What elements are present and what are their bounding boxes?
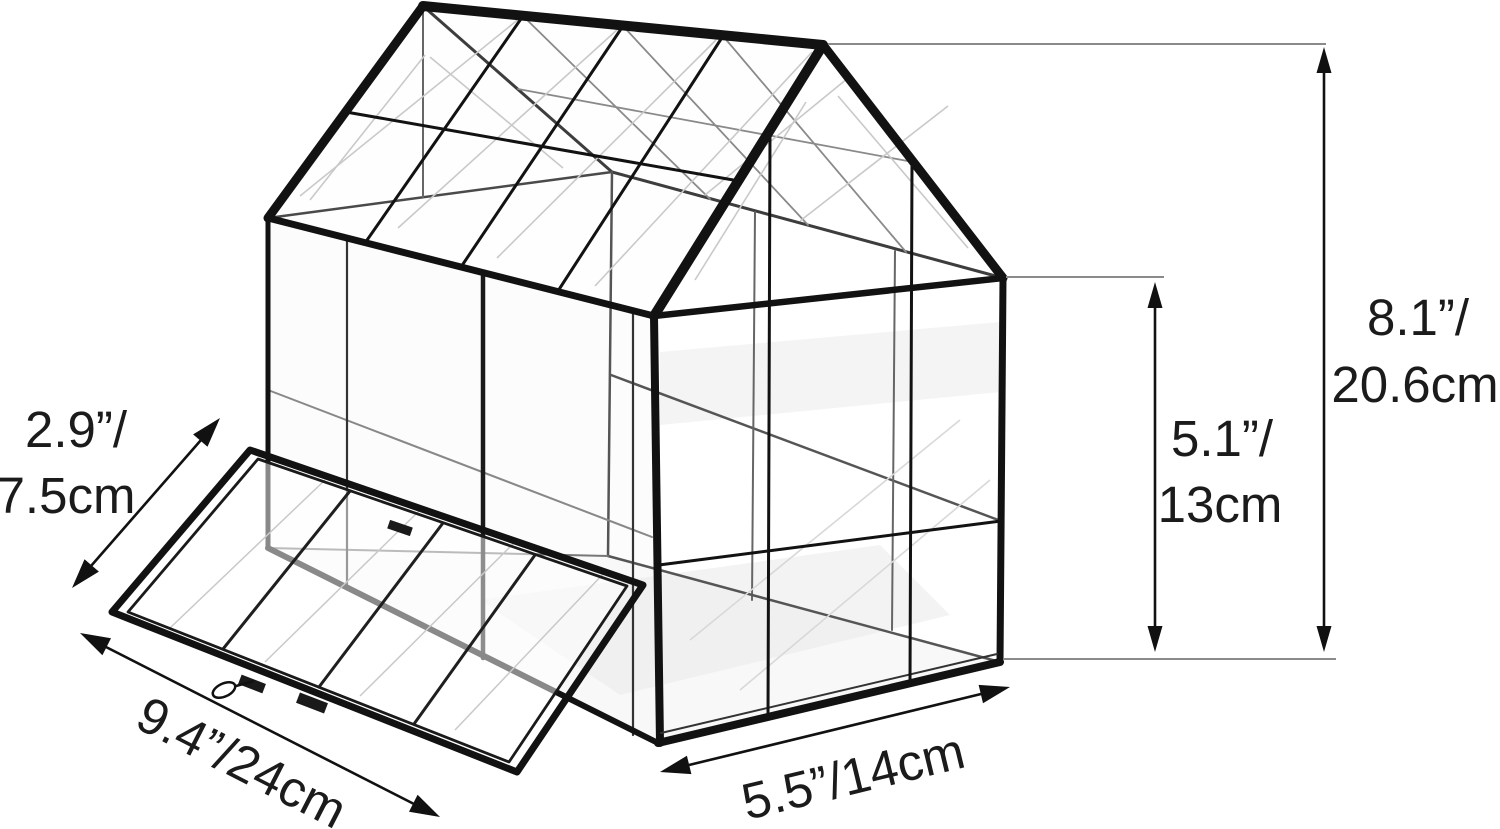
- door-height-label-line2: 7.5cm: [0, 467, 135, 524]
- door-height-label-line1: 2.9”/: [25, 401, 128, 458]
- terrarium-house-illustration: 2.9”/ 7.5cm 9.4”/24cm 5.5”/14cm: [0, 0, 1500, 829]
- side-height-dimension: 5.1”/ 13cm: [1148, 282, 1283, 652]
- total-height-dimension: 8.1”/ 20.6cm: [1317, 47, 1499, 652]
- base-depth-label: 5.5”/14cm: [736, 722, 970, 829]
- product-dimension-diagram: 2.9”/ 7.5cm 9.4”/24cm 5.5”/14cm: [0, 0, 1500, 829]
- total-height-label-line2: 20.6cm: [1331, 356, 1498, 413]
- side-height-label-line1: 5.1”/: [1171, 410, 1274, 467]
- side-height-label-line2: 13cm: [1158, 476, 1283, 533]
- total-height-label-line1: 8.1”/: [1367, 289, 1470, 346]
